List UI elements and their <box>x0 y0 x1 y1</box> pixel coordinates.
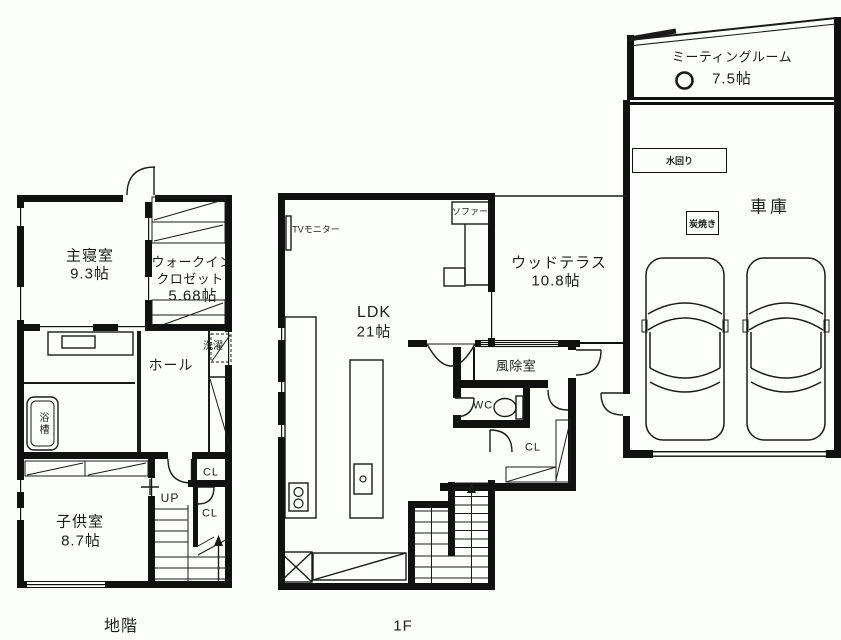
laundry-label: 洗濯 <box>203 342 223 352</box>
entry-door-arc <box>127 167 155 195</box>
car <box>642 258 728 440</box>
terrace-label: ウッドテラス <box>511 256 607 271</box>
closet-lower-label: CL <box>202 509 218 520</box>
first-floor-label: 1F <box>393 619 413 634</box>
stairhall-door-arc <box>168 459 192 483</box>
windbreak-room-label: 風除室 <box>496 360 537 373</box>
ldk-label: LDK <box>357 305 391 321</box>
water-area-label: 水回り <box>666 154 693 167</box>
garage-cars <box>642 258 829 440</box>
garage-label: 車庫 <box>750 199 790 216</box>
walkin-closet-label-2: クロゼット <box>156 273 224 286</box>
first-floor-closet-label: CL <box>525 443 541 454</box>
wc-label: WC <box>473 401 493 412</box>
sofa-label: ソファー <box>452 208 488 217</box>
basement-floor-label: 地階 <box>104 619 138 635</box>
floor-plan-canvas: 主寝室 9.3帖 ウォークイン クロゼット 5.68帖 ホール 洗濯 浴槽 子供… <box>0 0 841 640</box>
hall-label: ホール <box>149 358 194 372</box>
meeting-room-label: ミーティングルーム <box>672 51 792 64</box>
meeting-room-slant-wall <box>629 18 836 46</box>
washroom-counter <box>48 332 133 355</box>
garage-side-door <box>601 393 623 415</box>
wc-door <box>455 398 474 417</box>
wall-cross-mark <box>141 479 159 495</box>
kitchen-counter <box>285 317 316 518</box>
floor-plan-linework <box>0 0 841 640</box>
counter-diag-box <box>313 553 406 580</box>
charcoal-grill-box: 炭焼き <box>686 211 719 235</box>
car <box>743 258 829 440</box>
kids-room-label: 子供室 <box>56 515 104 530</box>
meeting-room-table <box>677 73 693 89</box>
tv-monitor-shape <box>286 216 291 250</box>
kids-closet-hatch <box>25 461 148 476</box>
kitchen-island <box>350 360 383 518</box>
terrace-size: 10.8帖 <box>531 274 580 289</box>
bathtub-label: 浴槽 <box>37 412 47 436</box>
tv-monitor-label: TVモニター <box>292 226 340 235</box>
closet-upper-label: CL <box>203 468 219 479</box>
meeting-room-size: 7.5帖 <box>712 72 752 87</box>
charcoal-grill-label: 炭焼き <box>689 217 716 230</box>
toilet-shape <box>494 396 523 419</box>
walkin-closet-size: 5.68帖 <box>168 289 217 304</box>
master-bedroom-label: 主寝室 <box>66 249 114 264</box>
closet-corridor-door <box>490 430 512 452</box>
master-bedroom-size: 9.3帖 <box>70 267 110 282</box>
stairs-up-label: UP <box>161 492 180 504</box>
kids-room-size: 8.7帖 <box>61 534 101 549</box>
closet-door-arc <box>197 487 214 504</box>
water-area-box: 水回り <box>632 148 727 173</box>
closet-windbreak-door <box>548 390 568 410</box>
ldk-size: 21帖 <box>357 325 392 340</box>
windbreak-east-door <box>576 350 601 375</box>
walkin-closet-label-1: ウォークイン <box>151 256 232 269</box>
windbreak-entry-door <box>427 344 475 366</box>
